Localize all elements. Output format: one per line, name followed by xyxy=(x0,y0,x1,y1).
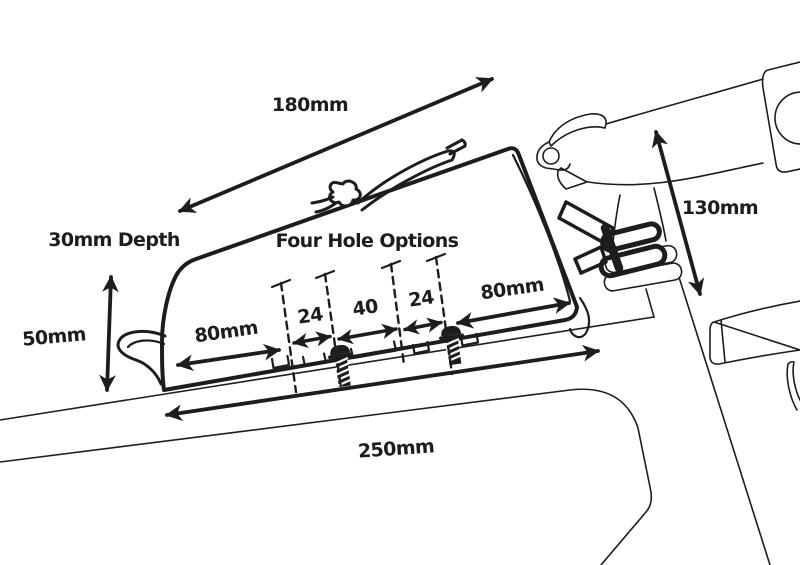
stem-bottom-edge xyxy=(588,163,763,185)
head-tube-left-edge xyxy=(646,289,654,317)
stem-lower-jaw xyxy=(558,168,587,189)
handlebar-hoods xyxy=(710,301,800,410)
brake-hood-lower xyxy=(787,362,800,410)
stem-top-edge xyxy=(606,79,763,124)
brake-hood-upper-end-cap xyxy=(721,320,725,362)
dim-label-24-right: 24 xyxy=(407,286,435,311)
brake-hood-upper xyxy=(710,301,800,364)
bag-outline xyxy=(162,148,577,390)
dim-label-130mm: 130mm xyxy=(682,197,758,219)
dim-label-50mm: 50mm xyxy=(21,323,86,350)
bag-front-pull-tab-inner xyxy=(128,340,164,347)
dim-label-40: 40 xyxy=(351,295,379,320)
diagram-canvas: 180mm 30mm Depth 50mm Four Hole Options … xyxy=(0,0,800,565)
stem-top-cap xyxy=(549,114,606,146)
dim-arrow-50mm xyxy=(107,277,111,390)
stem-bolt-icon xyxy=(543,148,559,164)
four-hole-options-title: Four Hole Options xyxy=(276,230,459,252)
head-tube-right-edge xyxy=(678,274,770,565)
handlebar-clamp-block xyxy=(763,62,800,172)
dim-label-24-left: 24 xyxy=(296,303,324,328)
dim-label-30mm-depth: 30mm Depth xyxy=(48,229,180,251)
top-tube-bag-dimension-diagram: 180mm 30mm Depth 50mm Four Hole Options … xyxy=(0,0,800,565)
dim-label-180mm: 180mm xyxy=(272,94,348,116)
handlebar-clamp-circle xyxy=(775,92,800,144)
dim-label-250mm: 250mm xyxy=(357,435,435,462)
stem-faceplate xyxy=(537,142,570,170)
top-tube-bottom-edge-and-junction xyxy=(0,389,651,565)
bag-front-pull-tab xyxy=(118,331,165,384)
